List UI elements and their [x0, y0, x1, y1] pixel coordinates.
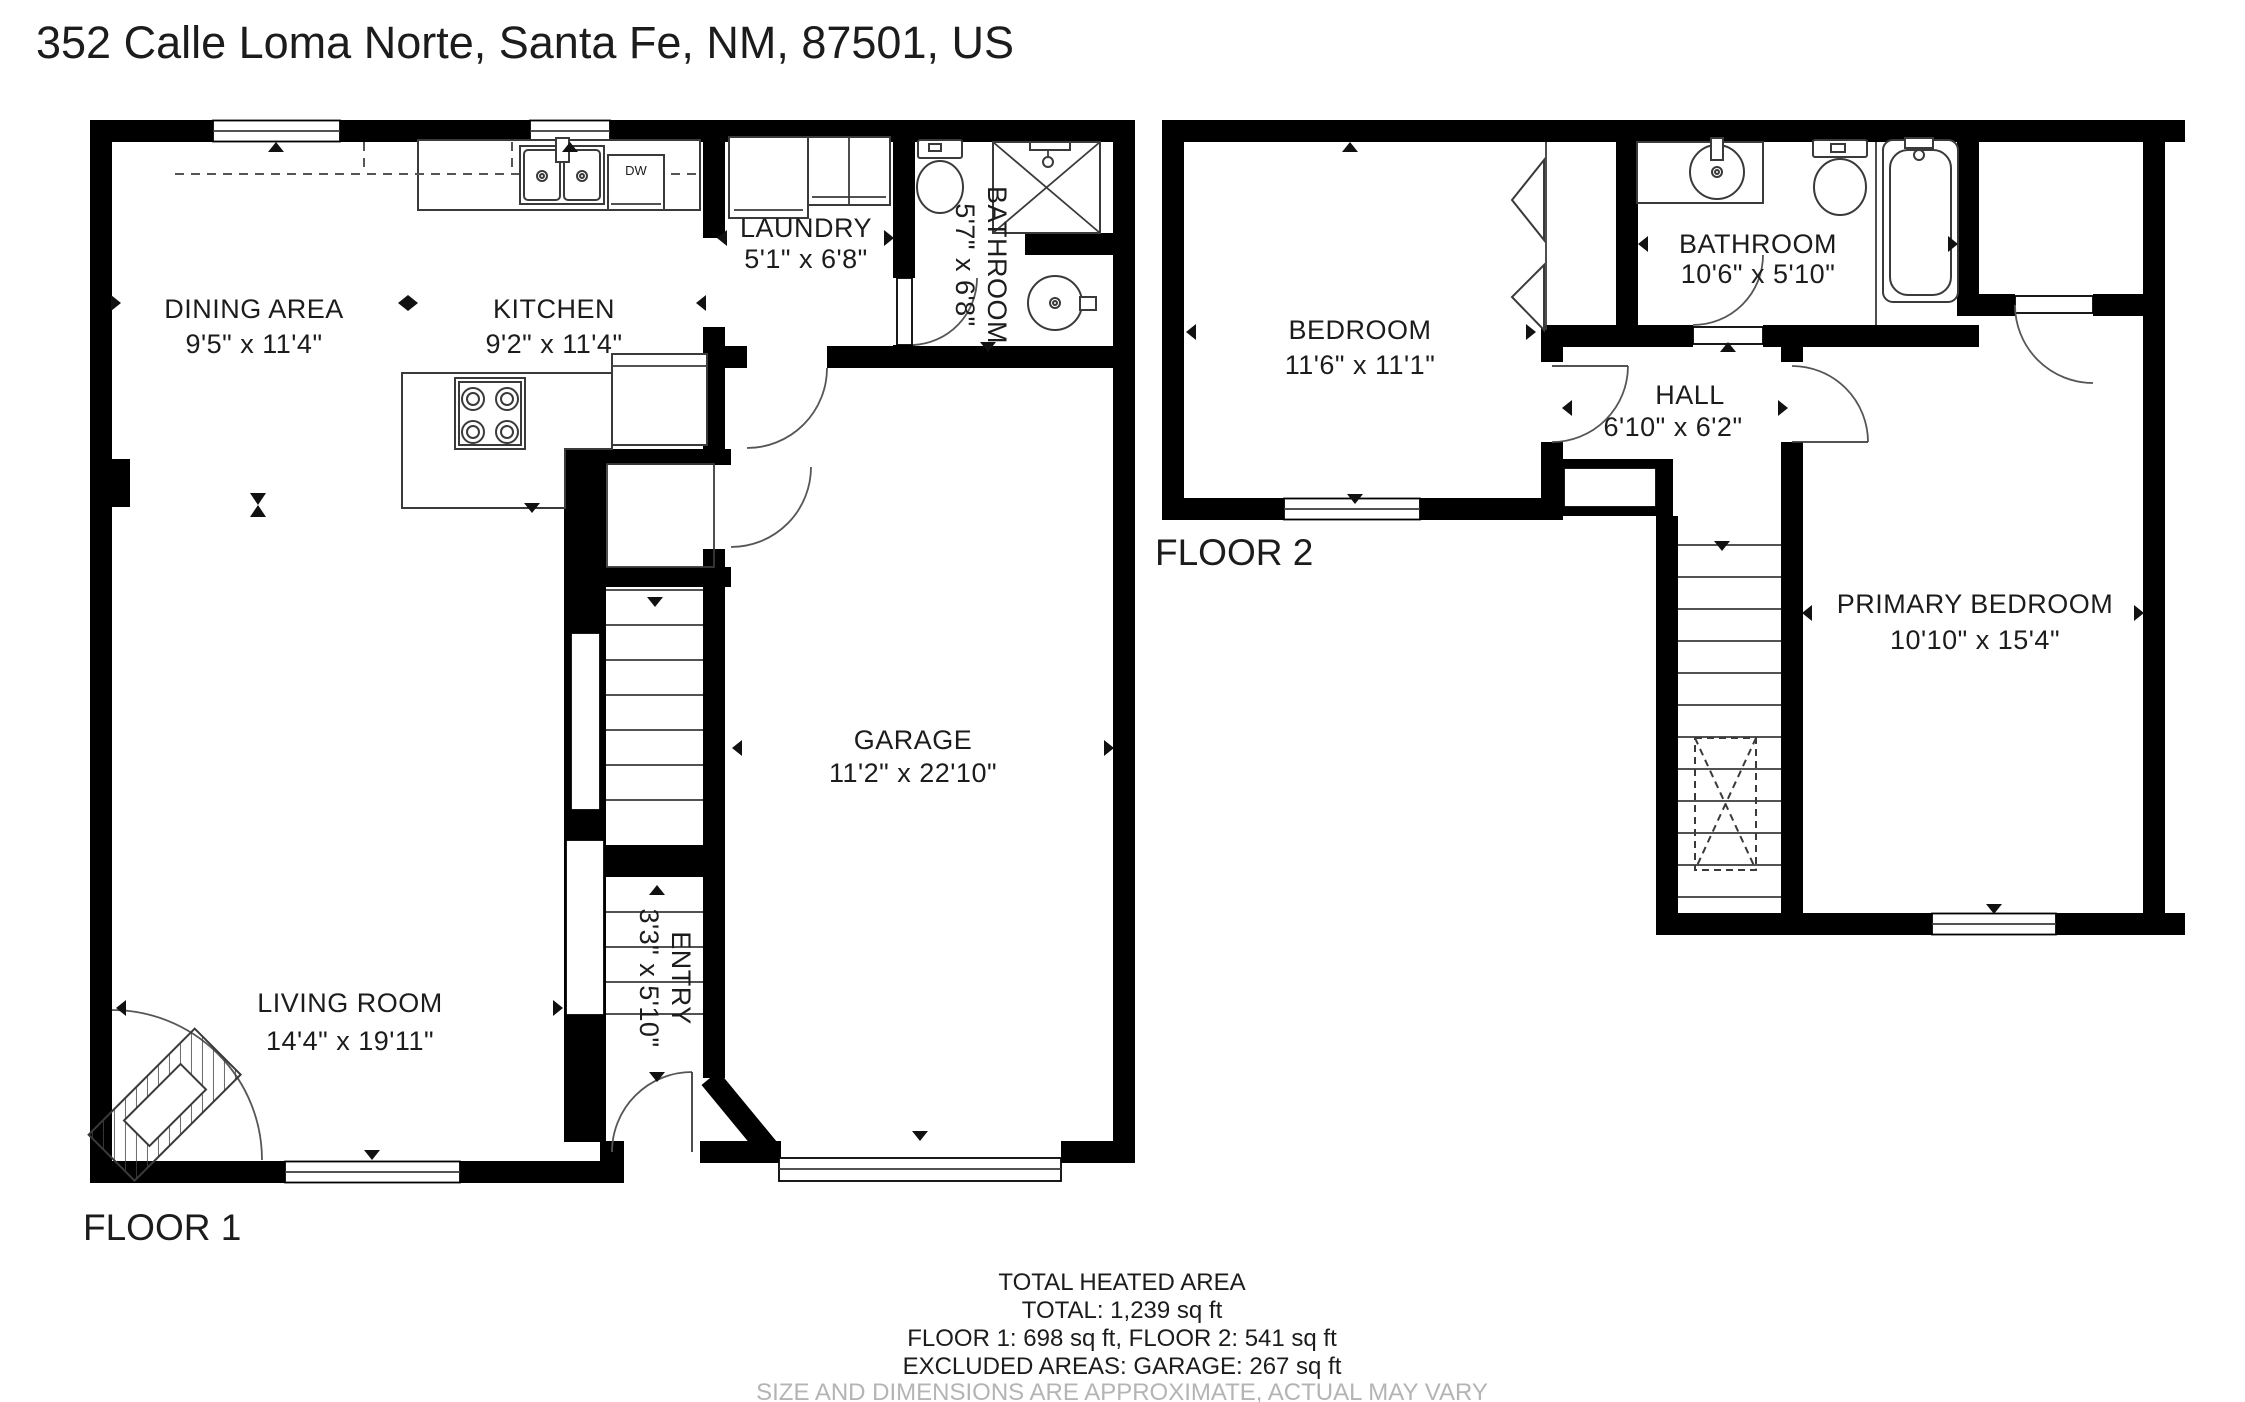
floor1-plan: DW	[83, 120, 1135, 1248]
room-label-bathroom2: BATHROOM	[1679, 229, 1837, 259]
footer-disclaimer: SIZE AND DIMENSIONS ARE APPROXIMATE, ACT…	[756, 1379, 1488, 1402]
floor-plan-drawing: 352 Calle Loma Norte, Santa Fe, NM, 8750…	[0, 0, 2245, 1402]
room-dims-kitchen: 9'2" x 11'4"	[485, 329, 622, 359]
footer-excluded: EXCLUDED AREAS: GARAGE: 267 sq ft	[903, 1353, 1342, 1380]
room-dims-dining: 9'5" x 11'4"	[185, 329, 322, 359]
room-label-dining: DINING AREA	[164, 294, 344, 324]
footer-total: TOTAL: 1,239 sq ft	[1022, 1297, 1223, 1324]
door-leaf-bathroom2	[1693, 327, 1763, 344]
room-dims-bathroom2: 10'6" x 5'10"	[1681, 259, 1836, 289]
room-label-bedroom: BEDROOM	[1288, 315, 1431, 345]
bathtub-icon	[1883, 138, 1958, 302]
door-arc-garage	[747, 368, 827, 448]
bifold-door-icon	[1512, 265, 1544, 330]
room-label-garage: GARAGE	[854, 725, 973, 755]
page-title: 352 Calle Loma Norte, Santa Fe, NM, 8750…	[36, 17, 1014, 68]
footer-summary: TOTAL HEATED AREA TOTAL: 1,239 sq ft FLO…	[756, 1269, 1488, 1402]
room-dims-garage: 11'2" x 22'10"	[829, 758, 997, 788]
room-label-living: LIVING ROOM	[257, 988, 443, 1018]
stove-icon	[455, 378, 525, 449]
door-arc-garage-closet	[731, 467, 811, 547]
room-dims-bedroom: 11'6" x 11'1"	[1285, 350, 1436, 380]
vanity-sink-icon	[1637, 138, 1763, 203]
footer-heading: TOTAL HEATED AREA	[998, 1269, 1245, 1296]
floor2-plan: BEDROOM 11'6" x 11'1" BATHROOM 10'6" x 5…	[1155, 120, 2185, 935]
floor2-label: FLOOR 2	[1155, 532, 1313, 573]
floor1-label: FLOOR 1	[83, 1207, 241, 1248]
stair-landing	[1564, 468, 1656, 507]
floor-plan-page: 352 Calle Loma Norte, Santa Fe, NM, 8750…	[0, 0, 2245, 1402]
stair-half-wall	[566, 840, 604, 1015]
toilet-icon	[917, 140, 963, 213]
bifold-door-icon	[1512, 160, 1544, 240]
wall-pier	[90, 459, 130, 507]
room-dims-entry: 3'3" x 5'10"	[634, 908, 664, 1047]
closet-wall-bottom	[565, 567, 731, 587]
fireplace-icon	[89, 1010, 262, 1181]
dishwasher-label: DW	[625, 163, 647, 178]
door-leaf-primary-closet	[2015, 296, 2093, 313]
door-arc-primary-closet	[2015, 305, 2093, 383]
room-dims-living: 14'4" x 19'11"	[266, 1026, 434, 1056]
room-dims-hall: 6'10" x 6'2"	[1603, 412, 1742, 442]
understair-closet	[607, 464, 714, 567]
room-label-laundry: LAUNDRY	[740, 213, 872, 243]
dishwasher-icon: DW	[608, 155, 664, 210]
toilet-icon	[1813, 140, 1867, 215]
room-label-bathroom1: BATHROOM	[982, 186, 1012, 344]
bathroom-sink-icon	[1028, 276, 1096, 330]
dryer-icon	[808, 137, 890, 205]
stair-void-marker	[1695, 738, 1756, 870]
bedroom-closet	[1512, 142, 1546, 330]
room-label-primary: PRIMARY BEDROOM	[1837, 589, 2114, 619]
door-arc-entry	[612, 1072, 692, 1152]
door-leaf-bathroom	[897, 278, 912, 345]
kitchen-sink-icon	[520, 138, 604, 204]
room-dims-laundry: 5'1" x 6'8"	[744, 244, 868, 274]
stair-landing-wall	[604, 845, 709, 877]
stair-treads	[1678, 545, 1781, 897]
washer-icon	[729, 137, 808, 218]
room-label-hall: HALL	[1655, 380, 1725, 410]
floor2-walls	[1162, 120, 2185, 935]
footer-floor-areas: FLOOR 1: 698 sq ft, FLOOR 2: 541 sq ft	[907, 1325, 1337, 1352]
laundry-fixtures	[729, 137, 890, 218]
room-dims-primary: 10'10" x 15'4"	[1890, 625, 2060, 655]
door-arc-primary	[1792, 366, 1868, 442]
room-label-kitchen: KITCHEN	[493, 294, 615, 324]
room-label-entry: ENTRY	[666, 931, 696, 1025]
room-dims-bathroom1: 5'7" x 6'8"	[950, 203, 980, 327]
floor2-stairs	[1678, 545, 1781, 897]
stair-railing	[571, 633, 600, 810]
refrigerator-icon	[612, 354, 707, 445]
closet-wall-top	[565, 449, 731, 465]
